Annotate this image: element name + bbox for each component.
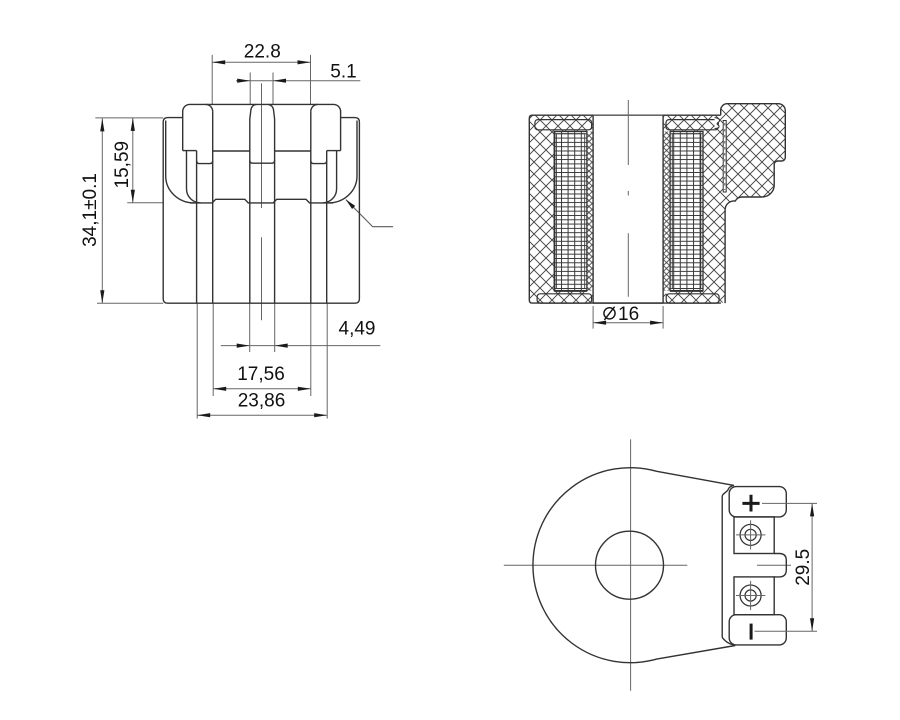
svg-text:16: 16 [618, 304, 639, 325]
svg-text:15,59: 15,59 [112, 141, 133, 189]
svg-text:17,56: 17,56 [237, 364, 285, 385]
svg-text:22.8: 22.8 [244, 41, 281, 62]
svg-text:23,86: 23,86 [238, 391, 286, 412]
svg-text:34,1±0.1: 34,1±0.1 [80, 173, 101, 247]
svg-text:5.1: 5.1 [330, 62, 356, 83]
svg-text:29.5: 29.5 [793, 549, 814, 586]
svg-text:4,49: 4,49 [339, 319, 376, 340]
